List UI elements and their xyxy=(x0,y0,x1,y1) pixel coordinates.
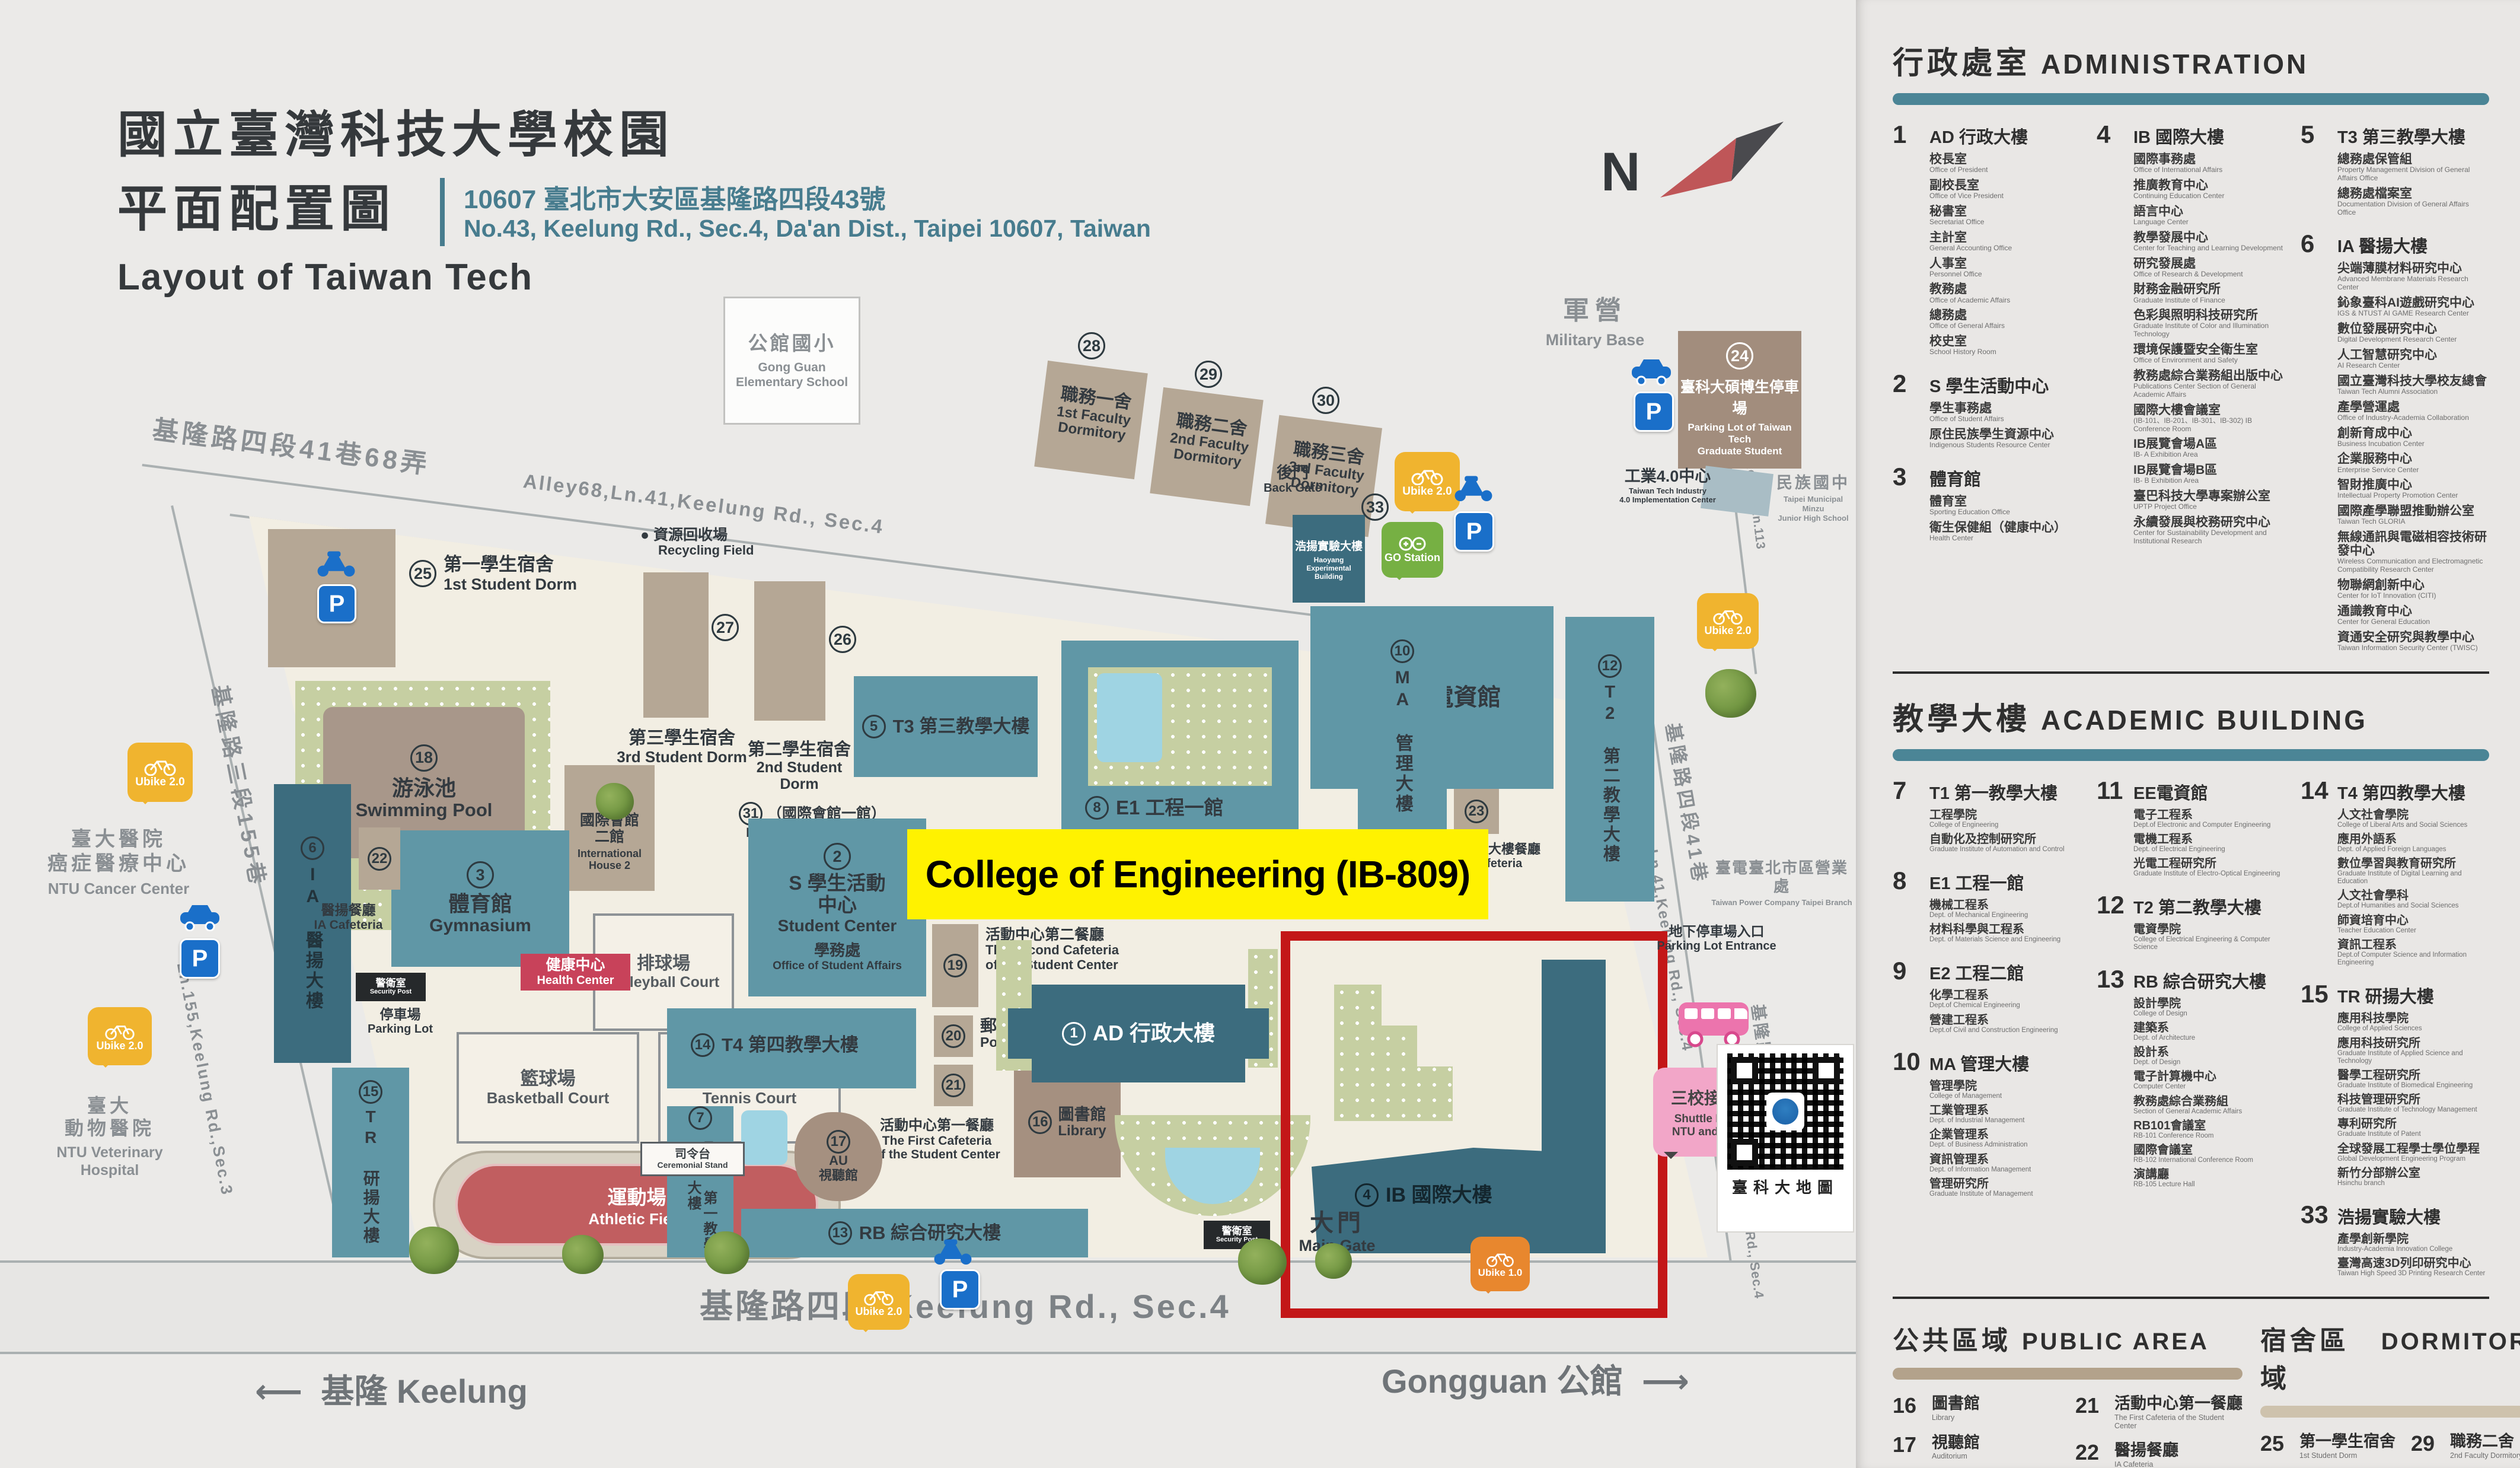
legend-item: 21 活動中心第一餐廳 The First Cafeteria of the S… xyxy=(2075,1395,2243,1430)
legend-item: 原住民族學生資源中心 Indigenous Students Resource … xyxy=(1929,428,2081,450)
gym-en: Gymnasium xyxy=(429,916,531,936)
security-west-en: Security Post xyxy=(370,989,412,996)
library-en: Library xyxy=(1058,1123,1106,1139)
osa-en: Office of Student Affairs xyxy=(773,960,902,972)
legend-item-zh: 活動中心第一餐廳 xyxy=(2114,1395,2243,1412)
legend-item: 衛生保健組（健康中心） Health Center xyxy=(1929,521,2081,543)
legend-building-items: 電子工程系 Dept.of Electronic and Computer En… xyxy=(2133,808,2285,878)
legend-item: 17 視聽館 Auditorium xyxy=(1893,1434,2060,1461)
legend-item-zh: IB展覽會場B區 xyxy=(2133,463,2285,477)
legend-building-header: 14 T4 第四教學大樓 xyxy=(2301,776,2489,805)
legend-item-zh: 物聯網創新中心 xyxy=(2337,578,2489,592)
legend-item-en: IB- A Exhibition Area xyxy=(2133,451,2285,459)
legend-item: 電機工程系 Dept. of Electrical Engineering xyxy=(2133,833,2285,854)
dorm25-en: 1st Student Dorm xyxy=(444,575,577,593)
grad-parking-zh: 臺科大碩博生停車場 xyxy=(1678,375,1801,418)
legend-item: 應用科技學院 College of Applied Sciences xyxy=(2337,1012,2489,1033)
legend-item-en: Graduate Institute of Applied Science an… xyxy=(2337,1050,2489,1065)
section-header: 教學大樓 ACADEMIC BUILDING xyxy=(1893,694,2489,738)
minzu-en1: Taipei Municipal Minzu xyxy=(1772,495,1855,513)
legend-building-number: 33 xyxy=(2301,1200,2330,1229)
military-zh: 軍營 xyxy=(1563,295,1627,327)
t2-building: 12 T2 第二教學大樓 xyxy=(1565,617,1654,902)
parking-icon-backgate: P xyxy=(1454,511,1494,552)
military-en: Military Base xyxy=(1546,330,1645,349)
legend-item: 設計系 Dept. of Design xyxy=(2133,1046,2285,1066)
legend-item: 國際事務處 Office of International Affairs xyxy=(2133,152,2285,174)
legend-building-title: T3 第三教學大樓 xyxy=(2337,123,2465,148)
go-station-text: GO Station xyxy=(1385,552,1440,564)
rb-number: 13 xyxy=(828,1221,852,1245)
ubike2-east-text: Ubike 2.0 xyxy=(1704,625,1751,637)
legend-item: 產學創新學院 Industry-Academia Innovation Coll… xyxy=(2337,1233,2489,1253)
legend-item-en: Center for Sustainability Development an… xyxy=(2133,529,2285,546)
legend-item-zh: 資訊工程系 xyxy=(2337,938,2489,951)
legend-item-zh: 臺巴科技大學專案辦公室 xyxy=(2133,489,2285,503)
legend-column: 14 T4 第四教學大樓 人文社會學院 College of Liberal A… xyxy=(2301,776,2489,1291)
ib-number: 4 xyxy=(1355,1183,1379,1207)
legend-item-en: The First Cafeteria of the Student Cente… xyxy=(2114,1414,2243,1431)
parking-entrance-zh: 地下停車場入口 xyxy=(1669,924,1765,940)
cancer-zh1: 臺大醫院 xyxy=(71,827,166,852)
ubike2-marker-southwest: Ubike 2.0 xyxy=(88,1007,152,1065)
legend-item: 企業服務中心 Enterprise Service Center xyxy=(2337,452,2489,474)
section-title-en: ADMINISTRATION xyxy=(2041,48,2308,80)
industry40-en1: Taiwan Tech Industry xyxy=(1629,487,1706,496)
legend-item: 副校長室 Office of Vice President xyxy=(1929,179,2081,200)
legend-item: 臺灣高速3D列印研究中心 Taiwan High Speed 3D Printi… xyxy=(2337,1257,2489,1278)
legend-item-en: Dept. of Information Management xyxy=(1929,1166,2081,1174)
legend-item-zh: IB展覽會場A區 xyxy=(2133,437,2285,451)
legend-item-en: Dept. of Electrical Engineering xyxy=(2133,846,2285,854)
student-center-building: 2 S 學生活動 中心 Student Center 學務處 Office of… xyxy=(748,819,926,996)
vet-zh2: 動物醫院 xyxy=(65,1117,155,1139)
ubike2-marker-maingate: Ubike 2.0 xyxy=(848,1274,910,1330)
dorm26-building xyxy=(754,581,825,721)
dorm28-number: 28 xyxy=(1078,332,1105,359)
legend-item-zh: 學生事務處 xyxy=(1929,402,2081,415)
legend-item-zh: 國際事務處 xyxy=(2133,152,2285,166)
legend-item-zh: 科技管理研究所 xyxy=(2337,1093,2489,1106)
industry40-label: 工業4.0中心 Taiwan Tech Industry 4.0 Impleme… xyxy=(1616,467,1720,504)
tree xyxy=(1315,1243,1352,1279)
legend-building-title: T1 第一教學大樓 xyxy=(1929,779,2058,804)
dorm27-en: 3rd Student Dorm xyxy=(617,749,747,766)
section-accent-bar xyxy=(1893,749,2489,761)
legend-building-items: 工程學院 College of Engineering 自動化及控制研究所 Gr… xyxy=(1929,808,2081,854)
legend-item: 應用外語系 Dept. of Applied Foreign Languages xyxy=(2337,833,2489,854)
ubike2-marker-west: Ubike 2.0 xyxy=(127,743,193,802)
legend-item-en: Office of Environment and Safety xyxy=(2133,356,2285,365)
legend-item-zh: 創新育成中心 xyxy=(2337,426,2489,440)
legend-building: 13 RB 綜合研究大樓 設計學院 College of Design 建築系 … xyxy=(2097,965,2285,1189)
ad-wing-east xyxy=(1245,1008,1269,1059)
legend-building: 12 T2 第二教學大樓 電資學院 College of Electrical … xyxy=(2097,891,2285,951)
legend-item: 營建工程系 Dept.of Civil and Construction Eng… xyxy=(1929,1014,2081,1034)
ma-number: 10 xyxy=(1390,639,1414,663)
ad-number: 1 xyxy=(1062,1022,1086,1046)
ad-building: 1 AD 行政大樓 xyxy=(1032,985,1245,1082)
legend-item-number: 25 xyxy=(2260,1433,2295,1460)
car-icon xyxy=(1629,356,1673,386)
legend-building: 9 E2 工程二館 化學工程系 Dept.of Chemical Enginee… xyxy=(1893,957,2081,1034)
dorm26-zh: 第二學生宿舍 xyxy=(748,740,851,759)
bicycle-icon xyxy=(1410,465,1444,485)
ia-number: 6 xyxy=(301,836,324,860)
cafeteria1-zh: 活動中心第一餐廳 xyxy=(880,1118,994,1134)
legend-item-zh: 校長室 xyxy=(1929,152,2081,166)
legend-building-header: 5 T3 第三教學大樓 xyxy=(2301,120,2489,149)
legend-item: 研究發展處 Office of Research & Development xyxy=(2133,257,2285,279)
legend-building: 33 浩揚實驗大樓 產學創新學院 Industry-Academia Innov… xyxy=(2301,1200,2489,1278)
legend-item-en: School History Room xyxy=(1929,348,2081,356)
legend-building-items: 產學創新學院 Industry-Academia Innovation Coll… xyxy=(2337,1233,2489,1278)
page-title-en: Layout of Taiwan Tech xyxy=(117,256,533,298)
dorm27-zh: 第三學生宿舍 xyxy=(629,728,735,749)
legend-building-title: MA 管理大樓 xyxy=(1929,1050,2029,1075)
legend-item: 國際大樓會議室 (IB-101、IB-201、IB-301、IB-302) IB… xyxy=(2133,403,2285,434)
legend-item: 色彩與照明科技研究所 Graduate Institute of Color a… xyxy=(2133,308,2285,339)
legend-item-en: IB- B Exhibition Area xyxy=(2133,477,2285,485)
legend-item: 材料科學與工程系 Dept. of Materials Science and … xyxy=(1929,923,2081,944)
legend-item-zh: 數位發展研究中心 xyxy=(2337,322,2489,336)
ma-text: MA 管理大樓 xyxy=(1392,668,1412,814)
haoyang-en2: Building xyxy=(1315,572,1343,581)
legend-item-en: Indigenous Students Resource Center xyxy=(1929,441,2081,450)
legend-building-title: TR 研揚大樓 xyxy=(2337,983,2434,1008)
legend-item: 資訊管理系 Dept. of Information Management xyxy=(1929,1153,2081,1174)
cancer-en: NTU Cancer Center xyxy=(48,880,189,898)
legend-item-en: Office of Industry-Academia Collaboratio… xyxy=(2337,414,2489,422)
bicycle-icon xyxy=(1485,1249,1515,1267)
legend-building-number: 3 xyxy=(1893,463,1922,491)
legend-item-en: College of Liberal Arts and Social Scien… xyxy=(2337,821,2489,829)
page-title-zh-line1: 國立臺灣科技大學校園 xyxy=(117,95,675,167)
recycling-zh: ● 資源回收場 xyxy=(640,527,754,543)
legend-building-items: 管理學院 College of Management 工業管理系 Dept. o… xyxy=(1929,1079,2081,1198)
parking-entrance-en: Parking Lot Entrance xyxy=(1657,940,1776,953)
legend-item-zh: 電子計算機中心 xyxy=(2133,1070,2285,1083)
legend-item-zh: 電資學院 xyxy=(2133,923,2285,936)
legend-building-title: E2 工程二館 xyxy=(1929,960,2024,985)
battery-swap-icon xyxy=(1398,536,1427,552)
section-divider xyxy=(1893,1297,2489,1299)
legend-column: 5 T3 第三教學大樓 總務處保管組 Property Management D… xyxy=(2301,120,2489,665)
haoyang-zh: 浩揚實驗大樓 xyxy=(1295,537,1363,553)
legend-item-zh: 管理研究所 xyxy=(1929,1177,2081,1190)
legend-item-en: Section of General Academic Affairs xyxy=(2133,1108,2285,1116)
legend-building-number: 5 xyxy=(2301,120,2330,149)
legend-item-en: Taiwan Information Security Center (TWIS… xyxy=(2337,644,2489,652)
legend-item-en: RB-105 Lecture Hall xyxy=(2133,1181,2285,1189)
qr-corner xyxy=(1731,1057,1758,1084)
legend-item-number: 17 xyxy=(1893,1434,1927,1461)
student-center-zh2: 中心 xyxy=(818,894,857,916)
legend-building-items: 學生事務處 Office of Student Affairs 原住民族學生資源… xyxy=(1929,402,2081,450)
legend-item-en: Library xyxy=(1932,1414,2060,1422)
haoyang-en1: Haoyang Experimental xyxy=(1293,556,1365,572)
legend-item: 演講廳 RB-105 Lecture Hall xyxy=(2133,1168,2285,1189)
house2-en1: International xyxy=(578,848,642,859)
legend-building-title: EE電資館 xyxy=(2133,779,2208,804)
t2-text: T2 第二教學大樓 xyxy=(1600,683,1619,864)
tr-text: TR 研揚大樓 xyxy=(361,1107,379,1246)
legend-item-en: Dept.of Humanities and Social Sciences xyxy=(2337,902,2489,910)
ia-cafeteria-label: 醫揚餐廳 IA Cafeteria xyxy=(305,903,391,932)
legend-item-en: Dept. of Materials Science and Engineeri… xyxy=(1929,936,2081,944)
legend-item: 教務處 Office of Academic Affairs xyxy=(1929,282,2081,304)
legend-item-en: Auditorium xyxy=(1932,1453,2060,1461)
legend-item-en: Secretariat Office xyxy=(1929,218,2081,227)
legend-item-zh: 推廣教育中心 xyxy=(2133,179,2285,192)
legend-item-en: Dept. of Mechanical Engineering xyxy=(1929,912,2081,919)
legend-item-zh: 產學創新學院 xyxy=(2337,1233,2489,1246)
legend-item-zh: 智財推廣中心 xyxy=(2337,478,2489,492)
library-label: 16 圖書館 Library xyxy=(1028,1106,1106,1139)
legend-item: 教學發展中心 Center for Teaching and Learning … xyxy=(2133,231,2285,253)
back-gate-zh: 後門 xyxy=(1277,464,1309,482)
legend-item-en: Office of General Affairs xyxy=(1929,322,2081,330)
parking-icon-maingate: P xyxy=(940,1269,980,1310)
legend-item-en: Office of Academic Affairs xyxy=(1929,297,2081,305)
legend-item-zh: 自動化及控制研究所 xyxy=(1929,833,2081,846)
recycling-dot: ● xyxy=(640,527,653,543)
legend-column: 21 活動中心第一餐廳 The First Cafeteria of the S… xyxy=(2075,1395,2243,1468)
legend-item: 總務處 Office of General Affairs xyxy=(1929,308,2081,330)
legend-building-header: 12 T2 第二教學大樓 xyxy=(2097,891,2285,919)
dorm25-number: 25 xyxy=(409,560,436,587)
legend-building-number: 8 xyxy=(1893,867,1922,895)
legend-item: 財務金融研究所 Graduate Institute of Finance xyxy=(2133,282,2285,304)
legend-item-en: Digital Development Research Center xyxy=(2337,336,2489,344)
health-center: 健康中心 Health Center xyxy=(521,954,630,991)
e1-label: 8 E1 工程一館 xyxy=(1085,796,1224,820)
legend-building-items: 應用科技學院 College of Applied Sciences 應用科技研… xyxy=(2337,1012,2489,1187)
legend-building-header: 33 浩揚實驗大樓 xyxy=(2301,1200,2489,1229)
legend-item-zh: 圖書館 xyxy=(1932,1395,2060,1412)
legend-item-zh: 數位學習與教育研究所 xyxy=(2337,857,2489,870)
volleyball-zh: 排球場 xyxy=(637,954,690,974)
legend-item-zh: 化學工程系 xyxy=(1929,989,2081,1002)
legend-item: 資訊工程系 Dept.of Computer Science and Infor… xyxy=(2337,938,2489,967)
scooter-icon-backgate xyxy=(1452,472,1495,502)
legend-item: 化學工程系 Dept.of Chemical Engineering xyxy=(1929,989,2081,1010)
legend-item-zh: 專利研究所 xyxy=(2337,1117,2489,1131)
legend-item-zh: 教務處綜合業務組出版中心 xyxy=(2133,369,2285,383)
pool-zh: 游泳池 xyxy=(392,776,456,800)
legend-item-en: Taiwan Tech GLORIA xyxy=(2337,518,2489,526)
legend-item: 29 職務二舍 2nd Faculty Dormitory xyxy=(2411,1433,2520,1460)
legend-building: 1 AD 行政大樓 校長室 Office of President 副校長室 O… xyxy=(1893,120,2081,356)
library-building: 16 圖書館 Library xyxy=(1014,1068,1121,1177)
legend-building-title: S 學生活動中心 xyxy=(1929,372,2049,397)
tr-number: 15 xyxy=(359,1080,382,1104)
legend-item-en: Graduate Institute of Management xyxy=(1929,1190,2081,1198)
ubike1-text: Ubike 1.0 xyxy=(1478,1267,1523,1279)
health-zh: 健康中心 xyxy=(546,957,605,974)
legend-item-en: Graduate Institute of Patent xyxy=(2337,1131,2489,1138)
osa-zh: 學務處 xyxy=(814,942,860,959)
legend-building-items: 總務處保管組 Property Management Division of G… xyxy=(2337,152,2489,216)
legend-item-zh: 衛生保健組（健康中心） xyxy=(1929,521,2081,534)
legend-item-zh: 研究發展處 xyxy=(2133,257,2285,270)
legend-item-en: Wireless Communication and Electromagnet… xyxy=(2337,558,2489,574)
shuttle-bus-icon xyxy=(1675,996,1752,1047)
rb-label: 13 RB 綜合研究大樓 xyxy=(828,1221,1001,1245)
legend-item-zh: RB101會議室 xyxy=(2133,1119,2285,1132)
legend-column: 7 T1 第一教學大樓 工程學院 College of Engineering … xyxy=(1893,776,2081,1211)
legend-item-zh: 企業管理系 xyxy=(1929,1128,2081,1141)
legend-item-zh: 人事室 xyxy=(1929,257,2081,270)
minzu-label: 民族國中 Taipei Municipal Minzu Junior High … xyxy=(1772,473,1855,523)
cafeteria1-building: 21 xyxy=(934,1065,973,1106)
legend-item-zh: 材料科學與工程系 xyxy=(1929,923,2081,936)
legend-item-zh: 國際產學聯盟推動辦公室 xyxy=(2337,504,2489,518)
grad-parking-en1: Parking Lot of Taiwan Tech xyxy=(1678,422,1801,445)
legend-item-en: Office of Research & Development xyxy=(2133,270,2285,279)
legend-item-en: Graduate Institute of Digital Learning a… xyxy=(2337,870,2489,886)
legend-item: 人工智慧研究中心 AI Research Center xyxy=(2337,348,2489,370)
parking-lot-zh: 停車場 xyxy=(380,1007,421,1023)
section-title-zh: 教學大樓 xyxy=(1893,694,2030,738)
legend-item-zh: 原住民族學生資源中心 xyxy=(1929,428,2081,441)
dorm26-number: 26 xyxy=(829,626,856,653)
legend-item-zh: 資通安全研究與教學中心 xyxy=(2337,630,2489,644)
parking-lot-en: Parking Lot xyxy=(368,1023,433,1036)
legend-item-en: Dept.of Electronic and Computer Engineer… xyxy=(2133,821,2285,829)
section-columns: 7 T1 第一教學大樓 工程學院 College of Engineering … xyxy=(1893,776,2489,1291)
legend-column: 25 第一學生宿舍 1st Student Dorm 26 第二學生宿舍 2nd… xyxy=(2260,1433,2395,1468)
legend-item-en: Office of Student Affairs xyxy=(1929,415,2081,423)
scooter-icon-maingate xyxy=(931,1235,975,1266)
legend-item: 人文社會學科 Dept.of Humanities and Social Sci… xyxy=(2337,889,2489,910)
west-arrow: ⟵ xyxy=(255,1373,321,1410)
legend-item: 總務處保管組 Property Management Division of G… xyxy=(2337,152,2489,183)
legend-item-zh: 總務處檔案室 xyxy=(2337,187,2489,200)
legend-item-zh: 新竹分部辦公室 xyxy=(2337,1167,2489,1180)
legend-building-title: T4 第四教學大樓 xyxy=(2337,779,2465,804)
legend-item-en: Taiwan High Speed 3D Printing Research C… xyxy=(2337,1270,2489,1278)
section-accent-bar xyxy=(2260,1406,2520,1418)
legend-item-zh: 應用科技學院 xyxy=(2337,1012,2489,1025)
legend-column: 29 職務二舍 2nd Faculty Dormitory 30 職務三舍 3r… xyxy=(2411,1433,2520,1468)
security-west-zh: 警衛室 xyxy=(376,978,406,989)
student-center-zh1: S 學生活動 xyxy=(789,872,885,894)
e1-building: 8 E1 工程一館 xyxy=(1061,641,1299,836)
legend-item: 工業管理系 Dept. of Industrial Management xyxy=(1929,1104,2081,1125)
legend-item: 秘書室 Secretariat Office xyxy=(1929,205,2081,227)
legend-building: 8 E1 工程一館 機械工程系 Dept. of Mechanical Engi… xyxy=(1893,867,2081,944)
ubike2-maingate-text: Ubike 2.0 xyxy=(855,1305,902,1318)
legend-item-en: Health Center xyxy=(1929,534,2081,543)
legend-building-title: E1 工程一館 xyxy=(1929,870,2024,894)
legend-item-number: 21 xyxy=(2075,1395,2110,1430)
legend-item: IB展覽會場A區 IB- A Exhibition Area xyxy=(2133,437,2285,459)
tree xyxy=(562,1235,604,1274)
legend-item-en: Office of International Affairs xyxy=(2133,166,2285,174)
legend-item-number: 29 xyxy=(2411,1433,2445,1460)
ubike2-west-text: Ubike 2.0 xyxy=(135,776,184,789)
haoyang-building: 浩揚實驗大樓 Haoyang Experimental Building xyxy=(1293,515,1365,603)
legend-column: 11 EE電資館 電子工程系 Dept.of Electronic and Co… xyxy=(2097,776,2285,1202)
minzu-zh: 民族國中 xyxy=(1776,473,1850,492)
e1-pond xyxy=(1097,673,1162,762)
legend-building-header: 7 T1 第一教學大樓 xyxy=(1893,776,2081,805)
taipower-en: Taiwan Power Company Taipei Branch xyxy=(1711,898,1852,907)
legend-item-zh: 醫學工程研究所 xyxy=(2337,1069,2489,1082)
legend-item: 全球發展工程學士學位學程 Global Development Engineer… xyxy=(2337,1142,2489,1163)
legend-item-zh: 應用外語系 xyxy=(2337,833,2489,846)
section-header: 公共區域 PUBLIC AREA xyxy=(1893,1319,2243,1357)
legend-item: 體育室 Sporting Education Office xyxy=(1929,495,2081,517)
security-post-west: 警衛室 Security Post xyxy=(356,973,426,1001)
legend-section-public: 公共區域 PUBLIC AREA 16 圖書館 Library 17 視聽館 A… xyxy=(1893,1319,2243,1468)
legend-item: 電資學院 College of Electrical Engineering &… xyxy=(2133,923,2285,951)
gongguan-elementary-zh: 公館國小 xyxy=(748,332,836,355)
pool-number: 18 xyxy=(410,744,438,772)
qr-corner xyxy=(1731,1139,1758,1166)
legend-item-en: IGS & NTUST AI GAME Research Center xyxy=(2337,310,2489,318)
legend-item: 尖端薄膜材料研究中心 Advanced Membrane Materials R… xyxy=(2337,262,2489,292)
legend-item: 機械工程系 Dept. of Mechanical Engineering xyxy=(1929,899,2081,919)
legend-item-zh: 尖端薄膜材料研究中心 xyxy=(2337,262,2489,275)
taipower-label: 臺電臺北市區營業處 Taiwan Power Company Taipei Br… xyxy=(1708,859,1856,907)
legend-building-number: 1 xyxy=(1893,120,1922,149)
legend-item-en: Documentation Division of General Affair… xyxy=(2337,200,2489,217)
t1-number: 7 xyxy=(688,1106,712,1130)
legend-item-en: Sporting Education Office xyxy=(1929,508,2081,517)
legend-item: 無線通訊與電磁相容技術研發中心 Wireless Communication a… xyxy=(2337,530,2489,574)
legend-building-title: RB 綜合研究大樓 xyxy=(2133,968,2266,993)
parking-lot-label: 停車場 Parking Lot xyxy=(356,1007,445,1036)
east-arrow: ⟶ xyxy=(1623,1362,1689,1400)
legend-item-zh: 永續發展與校務研究中心 xyxy=(2133,515,2285,529)
page-title-zh-line2: 平面配置圖 xyxy=(117,169,396,241)
legend-building-items: 國際事務處 Office of International Affairs 推廣… xyxy=(2133,152,2285,546)
minzu-en2: Junior High School xyxy=(1778,514,1848,523)
legend-column: 1 AD 行政大樓 校長室 Office of President 副校長室 O… xyxy=(1893,120,2081,556)
legend-building: 15 TR 研揚大樓 應用科技學院 College of Applied Sci… xyxy=(2301,980,2489,1187)
legend-item-en: Language Center xyxy=(2133,218,2285,227)
recycling-label: ● 資源回收場 Recycling Field xyxy=(640,527,754,558)
legend-building-number: 15 xyxy=(2301,980,2330,1008)
legend-item-zh: 視聽館 xyxy=(1932,1434,2060,1451)
legend-item: 16 圖書館 Library xyxy=(1893,1395,2060,1422)
keelung-direction-label: ⟵ 基隆 Keelung xyxy=(255,1371,528,1411)
field-zh: 運動場 xyxy=(608,1182,666,1210)
legend-item-en: Dept. of Applied Foreign Languages xyxy=(2337,846,2489,854)
legend-item-zh: 副校長室 xyxy=(1929,179,2081,192)
legend-building-title: 浩揚實驗大樓 xyxy=(2337,1203,2441,1228)
post-office-number: 20 xyxy=(942,1024,965,1048)
legend-item: 推廣教育中心 Continuing Education Center xyxy=(2133,179,2285,200)
legend-item: 語言中心 Language Center xyxy=(2133,205,2285,227)
legend-item-en: Business Incubation Center xyxy=(2337,440,2489,448)
legend-item: 教務處綜合業務組 Section of General Academic Aff… xyxy=(2133,1095,2285,1116)
tree xyxy=(596,783,634,820)
legend-item-zh: 光電工程研究所 xyxy=(2133,857,2285,870)
gongguan-elementary-en2: Elementary School xyxy=(736,375,848,390)
health-en: Health Center xyxy=(537,974,614,987)
e1-text: E1 工程一館 xyxy=(1116,797,1224,819)
legend-item-en: Taiwan Tech Alumni Association xyxy=(2337,388,2489,396)
legend-item-en: Advanced Membrane Materials Research Cen… xyxy=(2337,275,2489,292)
industry40-en2: 4.0 Implementation Center xyxy=(1619,496,1716,505)
ceremonial-en: Ceremonial Stand xyxy=(657,1161,728,1170)
legend-item-zh: 環境保護暨安全衛生室 xyxy=(2133,343,2285,356)
section-columns: 1 AD 行政大樓 校長室 Office of President 副校長室 O… xyxy=(1893,120,2489,665)
legend-item-zh: 教學發展中心 xyxy=(2133,231,2285,244)
